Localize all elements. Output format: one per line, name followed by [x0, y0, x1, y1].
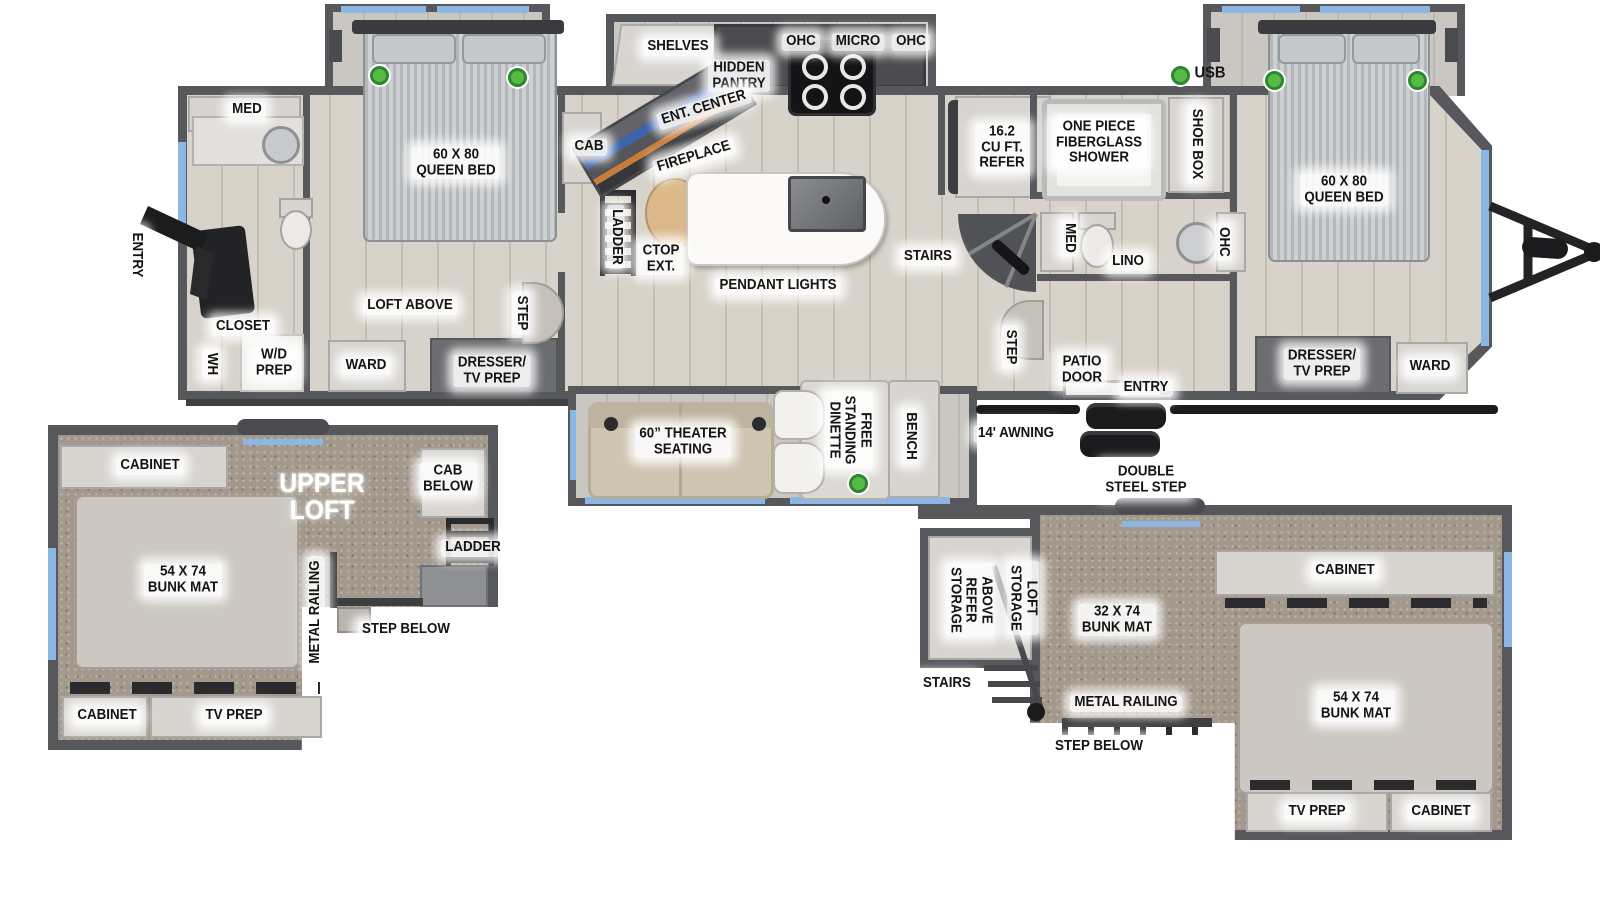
label-wd-prep: W/D PREP [251, 346, 297, 379]
label-stairs-main: STAIRS [899, 248, 956, 266]
cabinet-vents [1225, 598, 1487, 608]
label-theater: 60” THEATER SEATING [635, 425, 731, 458]
hitch-a-frame [1490, 206, 1594, 298]
label-closet: CLOSET [211, 318, 274, 336]
label-ll-ladder: LADDER [441, 539, 506, 557]
entry-step [1086, 403, 1166, 429]
cabinet-vents [1250, 780, 1488, 790]
dinette-chair [773, 442, 825, 494]
label-step-left: STEP [512, 291, 530, 335]
label-ll-step-below: STEP BELOW [357, 621, 454, 639]
metal-railing-bar [330, 552, 337, 608]
window-strip [1320, 6, 1430, 13]
metal-railing-bar [337, 598, 423, 606]
label-dinette: FREE STANDING DINETTE [825, 391, 874, 469]
label-rl-tv-prep: TV PREP [1284, 803, 1350, 821]
rear-sink [262, 126, 300, 164]
railing-posts [1062, 727, 1212, 735]
window-strip [1504, 552, 1512, 647]
window-strip [178, 142, 186, 234]
label-entry-rear: ENTRY [127, 228, 145, 282]
usb-indicator-dot [849, 474, 868, 493]
label-ladder-main: LADDER [607, 205, 625, 270]
label-awning: 14' AWNING [973, 425, 1058, 443]
label-pendant-lights: PENDANT LIGHTS [715, 277, 841, 295]
refrigerator-door [948, 100, 958, 194]
label-entry-mid: ENTRY [1119, 379, 1173, 397]
window-strip [341, 6, 426, 13]
usb-indicator-dot [1265, 71, 1284, 90]
window-strip [1122, 521, 1200, 527]
label-shelves: SHELVES [643, 38, 713, 56]
burner [802, 54, 828, 80]
label-rl-cabinet-top: CABINET [1311, 562, 1379, 580]
washer-dryer-unit [191, 225, 255, 319]
island-faucet [822, 196, 830, 204]
label-rl-bunk54: 54 X 74 BUNK MAT [1316, 689, 1395, 722]
bath-sink-mid [1176, 222, 1218, 264]
cupholder [752, 417, 766, 431]
loft-step-platform [420, 565, 488, 607]
label-rl-cabinet-bottom: CABINET [1407, 803, 1475, 821]
bed-right-headboard [1258, 20, 1436, 34]
label-rl-refer-storage: ABOVE REFER STORAGE [946, 563, 995, 638]
label-ward-left: WARD [341, 357, 391, 375]
label-wh: WH [202, 348, 220, 379]
skylight [237, 419, 329, 435]
label-lino: LINO [1107, 253, 1148, 271]
label-micro: MICRO [831, 33, 885, 51]
wall-midbath-left [1030, 95, 1037, 199]
label-rl-loft-storage: LOFT STORAGE [1006, 561, 1039, 636]
cupholder [604, 417, 618, 431]
window-strip [48, 548, 56, 660]
entry-step [1080, 431, 1160, 457]
window-strip [570, 410, 576, 480]
frame-rail [186, 399, 568, 406]
usb-indicator-dot [1408, 71, 1427, 90]
label-shower: ONE PIECE FIBERGLASS SHOWER [1051, 119, 1146, 168]
label-dresser-right: DRESSER/ TV PREP [1283, 347, 1360, 380]
label-ctop-ext: CTOP EXT. [638, 242, 684, 275]
rv-floorplan: USB SHELVES HIDDEN PANTRY OHC MICRO OHC … [0, 0, 1600, 897]
label-upper-loft: UPPER LOFT [275, 469, 370, 525]
dinette-chair [773, 390, 825, 440]
burner [840, 54, 866, 80]
bed-left-headboard [352, 20, 564, 34]
label-ll-cabinet-bottom: CABINET [73, 707, 141, 725]
rear-toilet-bowl [280, 210, 312, 250]
window-strip [437, 6, 529, 13]
label-dresser-left: DRESSER/ TV PREP [453, 354, 530, 387]
bed-left-pillow [462, 34, 546, 64]
label-ll-bunk54: 54 X 74 BUNK MAT [143, 563, 222, 596]
hitch-coupler [1584, 242, 1600, 262]
window-strip [1222, 6, 1300, 13]
window [329, 30, 342, 62]
metal-railing-bar [1062, 718, 1212, 727]
label-ll-rail: METAL RAILING [307, 556, 325, 668]
label-ll-tv-prep: TV PREP [201, 707, 267, 725]
label-refer: 16.2 CU FT. REFER [975, 124, 1029, 173]
label-double-step: DOUBLE STEEL STEP [1101, 463, 1192, 496]
label-ll-cabinet-top: CABINET [116, 457, 184, 475]
window [1207, 28, 1220, 62]
label-loft-above: LOFT ABOVE [363, 297, 458, 315]
wall-bedroom-left-bottom [558, 272, 565, 391]
usb-indicator-dot [370, 66, 389, 85]
label-queen-right: 60 X 80 QUEEN BED [1300, 173, 1389, 206]
label-med-mid: MED [1060, 219, 1078, 258]
label-shoe-box: SHOE BOX [1187, 104, 1205, 184]
skylight [1115, 498, 1205, 514]
label-step-mid: STEP [1001, 325, 1019, 369]
usb-label: USB [1190, 63, 1230, 82]
label-bench: BENCH [901, 408, 919, 465]
bed-right-pillow [1352, 34, 1420, 64]
bed-left-pillow [372, 34, 456, 64]
wall-midbath-bottom [1037, 274, 1233, 281]
hitch-jack [1521, 236, 1568, 259]
window [1445, 28, 1458, 62]
usb-indicator-dot [508, 68, 527, 87]
label-ward-right: WARD [1405, 358, 1455, 376]
awning-rail [1170, 405, 1498, 414]
label-patio-door: PATIO DOOR [1057, 353, 1106, 386]
label-cab-below: CAB BELOW [419, 462, 478, 495]
right-loft-top-wall [918, 505, 1038, 519]
burner [840, 84, 866, 110]
label-ohc-bath: OHC [1214, 223, 1232, 262]
bed-right-pillow [1278, 34, 1346, 64]
label-ohc-right: OHC [892, 33, 931, 51]
label-ohc-left: OHC [782, 33, 821, 51]
cabinet-vents [70, 682, 320, 694]
label-rl-rail: METAL RAILING [1070, 694, 1182, 712]
window-strip [1481, 150, 1489, 346]
window-strip [243, 439, 323, 445]
island-sink [788, 176, 866, 232]
label-rl-stairs: STAIRS [918, 675, 975, 693]
label-rl-step-below: STEP BELOW [1050, 738, 1147, 756]
label-med-rear: MED [228, 101, 267, 119]
wall-refer [938, 95, 945, 195]
label-rl-bunk32: 32 X 74 BUNK MAT [1077, 603, 1156, 636]
label-queen-left: 60 X 80 QUEEN BED [412, 146, 501, 179]
label-cab-living: CAB [570, 138, 608, 156]
awning-rail [976, 405, 1080, 414]
usb-indicator-dot [1171, 66, 1190, 85]
burner [802, 84, 828, 110]
